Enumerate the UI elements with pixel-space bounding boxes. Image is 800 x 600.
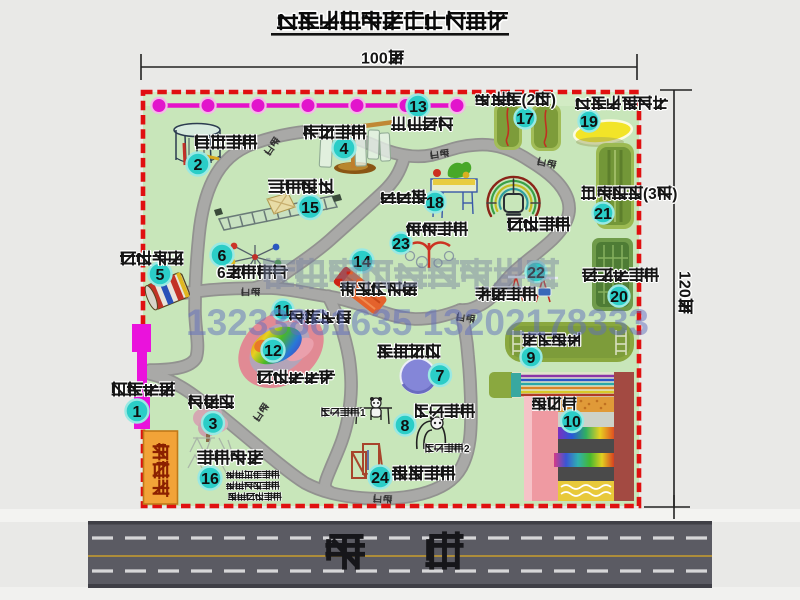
svg-text:9: 9 [527,350,536,367]
svg-text:8: 8 [401,418,410,435]
svg-text:15: 15 [301,200,319,217]
svg-text:19: 19 [580,114,598,131]
svg-text:21: 21 [594,206,612,223]
svg-text:2: 2 [194,157,203,174]
svg-text:13: 13 [409,99,427,116]
svg-text:16: 16 [201,471,219,488]
svg-text:24: 24 [371,470,389,487]
svg-text:17: 17 [516,111,534,128]
svg-text:6: 6 [218,248,227,265]
svg-text:12: 12 [264,343,282,360]
svg-text:4: 4 [340,141,349,158]
svg-text:18: 18 [426,195,444,212]
svg-text:1: 1 [133,404,142,421]
svg-text:5: 5 [156,267,165,284]
svg-text:3: 3 [209,416,218,433]
svg-text:7: 7 [436,368,445,385]
svg-text:10: 10 [563,414,581,431]
